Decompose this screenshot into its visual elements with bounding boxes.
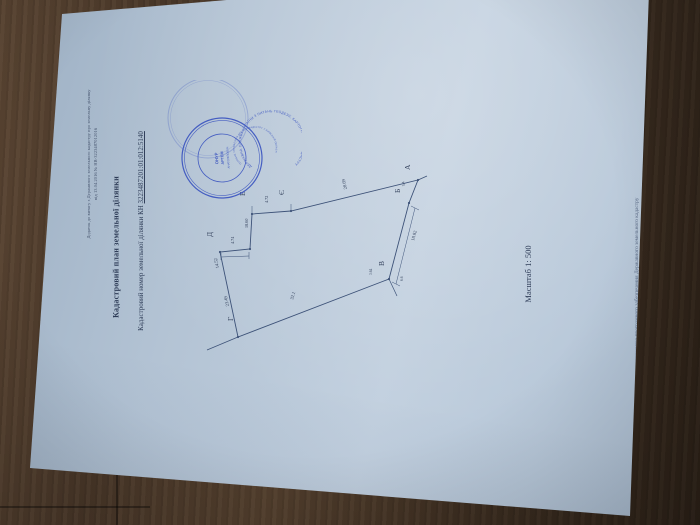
document-sheet: Додаток до витягу з Державного земельног…: [0, 0, 700, 525]
dim-label-ea: 28.69: [341, 178, 348, 190]
official-stamp: ДЕРЖАВНА СЛУЖБА УКРАЇНИ З ПИТАНЬ ГЕОДЕЗІ…: [142, 80, 302, 240]
footer-credit: Створено за допомогою програмного забезп…: [634, 197, 640, 392]
cadastral-plot-diagram: А Б В Г Д Е Є 28.69 5.4 18.02 32.1 14.52…: [0, 0, 700, 525]
vertex-label-v: В: [377, 261, 386, 266]
dim-label-gd-lower: 23.49: [223, 295, 230, 307]
dim-label-ab: 5.4: [401, 181, 406, 186]
vertex-label-g: Г: [226, 316, 235, 321]
vertex-label-b: Б: [393, 189, 402, 193]
svg-text:ДЕРЖАВНА СЛУЖБА УКРАЇНИ З ПИТА: ДЕРЖАВНА СЛУЖБА УКРАЇНИ З ПИТАНЬ ГЕОДЕЗІ…: [236, 107, 302, 171]
dim-label-v-right: 6.6: [400, 276, 404, 281]
stamp-outer-ring-text: ДЕРЖАВНА СЛУЖБА УКРАЇНИ З ПИТАНЬ ГЕОДЕЗІ…: [236, 107, 302, 171]
stamp-ghost-impression: [168, 80, 248, 158]
stamp-center-line1: ОНУР: [214, 152, 220, 164]
scale-label: Масштаб 1: 500: [523, 245, 533, 302]
stamp-center-line3: АНАТОЛІЙОВИЧ: [225, 146, 231, 168]
dim-label-bv: 18.02: [410, 229, 418, 241]
stamp-center-line2: АРТЕМ: [220, 151, 225, 164]
wood-plank-seam: [0, 506, 150, 508]
dim-label-v-left: 3.64: [369, 269, 373, 275]
vertex-label-a: А: [403, 164, 412, 170]
photo-of-document: Додаток до витягу з Державного земельног…: [0, 0, 700, 525]
dim-label-vg: 32.1: [289, 290, 296, 300]
dim-label-gd-upper: 14.52: [213, 257, 220, 269]
